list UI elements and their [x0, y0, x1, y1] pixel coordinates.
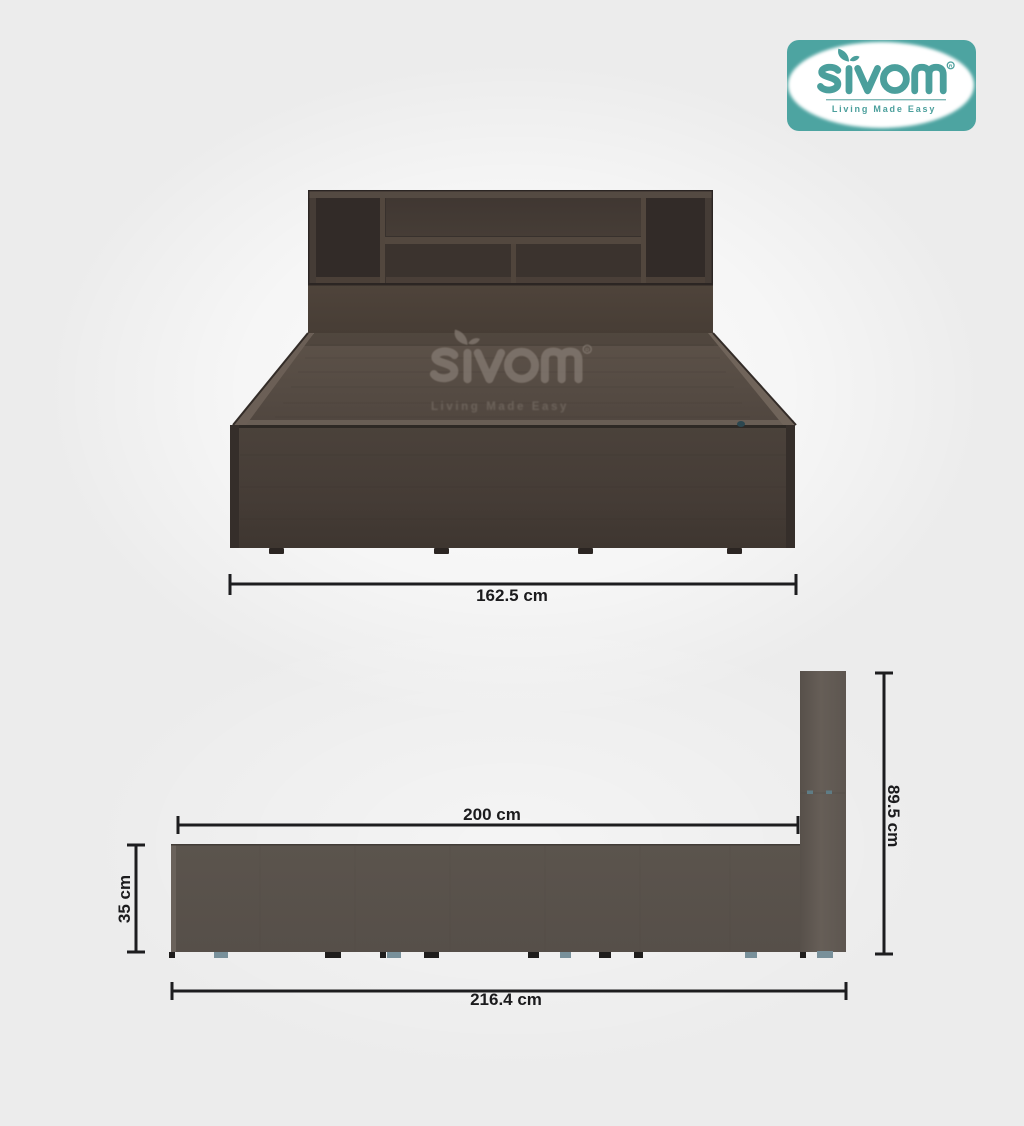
svg-text:200 cm: 200 cm	[463, 805, 521, 824]
svg-text:Living Made Easy: Living Made Easy	[431, 401, 569, 413]
svg-text:89.5 cm: 89.5 cm	[884, 785, 903, 847]
svg-text:216.4 cm: 216.4 cm	[470, 990, 542, 1009]
svg-text:162.5 cm: 162.5 cm	[476, 586, 548, 605]
svg-text:35 cm: 35 cm	[115, 875, 134, 923]
svg-text:Living Made Easy: Living Made Easy	[832, 104, 936, 114]
